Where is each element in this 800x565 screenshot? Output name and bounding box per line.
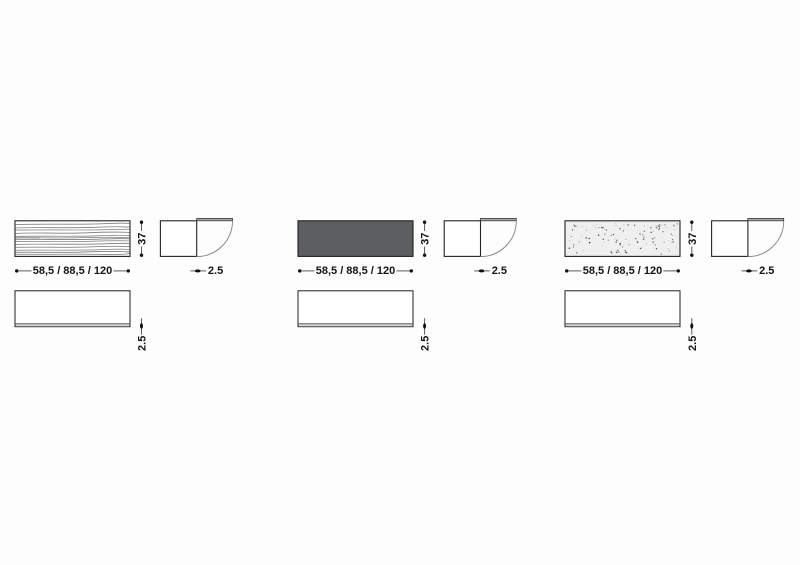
svg-text:2.5: 2.5 xyxy=(137,336,149,351)
svg-text:37: 37 xyxy=(137,233,149,245)
svg-text:2.5: 2.5 xyxy=(420,336,432,351)
svg-text:2.5: 2.5 xyxy=(759,265,774,277)
svg-text:2.5: 2.5 xyxy=(208,265,223,277)
svg-text:58,5 / 88,5 / 120: 58,5 / 88,5 / 120 xyxy=(316,265,396,277)
svg-text:58,5 / 88,5 / 120: 58,5 / 88,5 / 120 xyxy=(33,265,113,277)
svg-text:2.5: 2.5 xyxy=(687,336,699,351)
svg-text:58,5 / 88,5 / 120: 58,5 / 88,5 / 120 xyxy=(583,265,663,277)
svg-text:37: 37 xyxy=(420,233,432,245)
svg-text:2.5: 2.5 xyxy=(492,265,507,277)
svg-text:37: 37 xyxy=(687,233,699,245)
